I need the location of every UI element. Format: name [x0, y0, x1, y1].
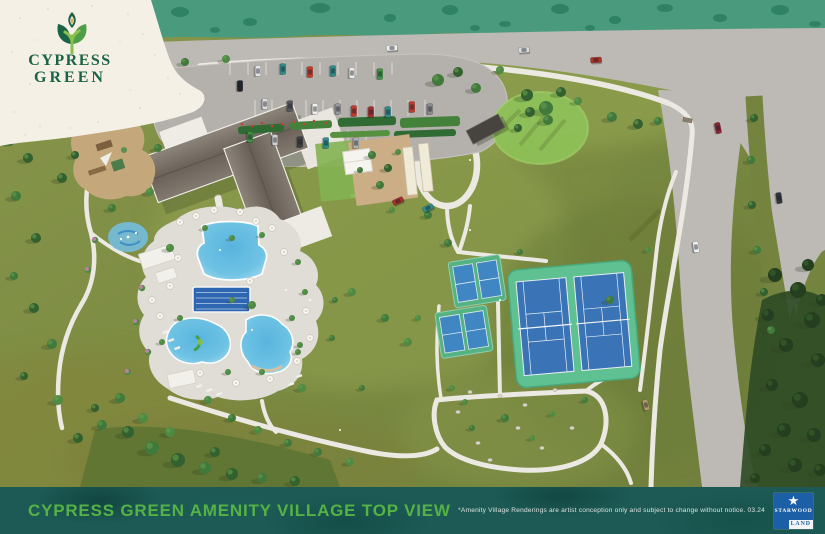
car [367, 107, 374, 119]
car [329, 66, 336, 78]
lap-pool [193, 287, 250, 312]
star-icon: ★ [788, 494, 800, 507]
car [518, 47, 530, 55]
disclaimer-text: *Amenity Village Renderings are artist c… [458, 507, 765, 514]
car [386, 45, 398, 53]
main-pool [197, 222, 266, 281]
aerial-rendering: CYPRESS GREEN [0, 0, 825, 487]
land-text: LAND [789, 520, 813, 529]
car [261, 99, 268, 111]
car [254, 66, 261, 78]
footer-title: CYPRESS GREEN AMENITY VILLAGE TOP VIEW [28, 501, 451, 521]
splash-pad [108, 222, 148, 252]
tennis-courts [507, 260, 641, 388]
car [246, 132, 253, 144]
car [306, 67, 313, 79]
car [311, 104, 318, 116]
car [376, 69, 383, 81]
car [271, 135, 278, 147]
car [296, 137, 303, 149]
footer-right: *Amenity Village Renderings are artist c… [458, 493, 813, 529]
car [279, 64, 286, 76]
car [590, 57, 602, 65]
footer-bar: CYPRESS GREEN AMENITY VILLAGE TOP VIEW *… [0, 487, 825, 534]
car [322, 138, 329, 150]
starwood-text: STARWOOD [775, 508, 813, 514]
car [426, 104, 433, 116]
car [286, 101, 293, 113]
amenity-village-poster: CYPRESS GREEN CYPRESS GREEN AMENITY VILL… [0, 0, 825, 534]
blue-block [774, 520, 789, 529]
car [350, 106, 357, 118]
car [334, 104, 341, 116]
starwood-logo-bottom: LAND [774, 520, 813, 529]
starwood-logo-top: ★ STARWOOD [774, 493, 813, 520]
car [236, 81, 243, 93]
starwood-land-logo: ★ STARWOOD LAND [774, 493, 813, 529]
car [352, 138, 359, 150]
car [348, 68, 355, 80]
car [408, 102, 415, 114]
car [384, 107, 391, 119]
